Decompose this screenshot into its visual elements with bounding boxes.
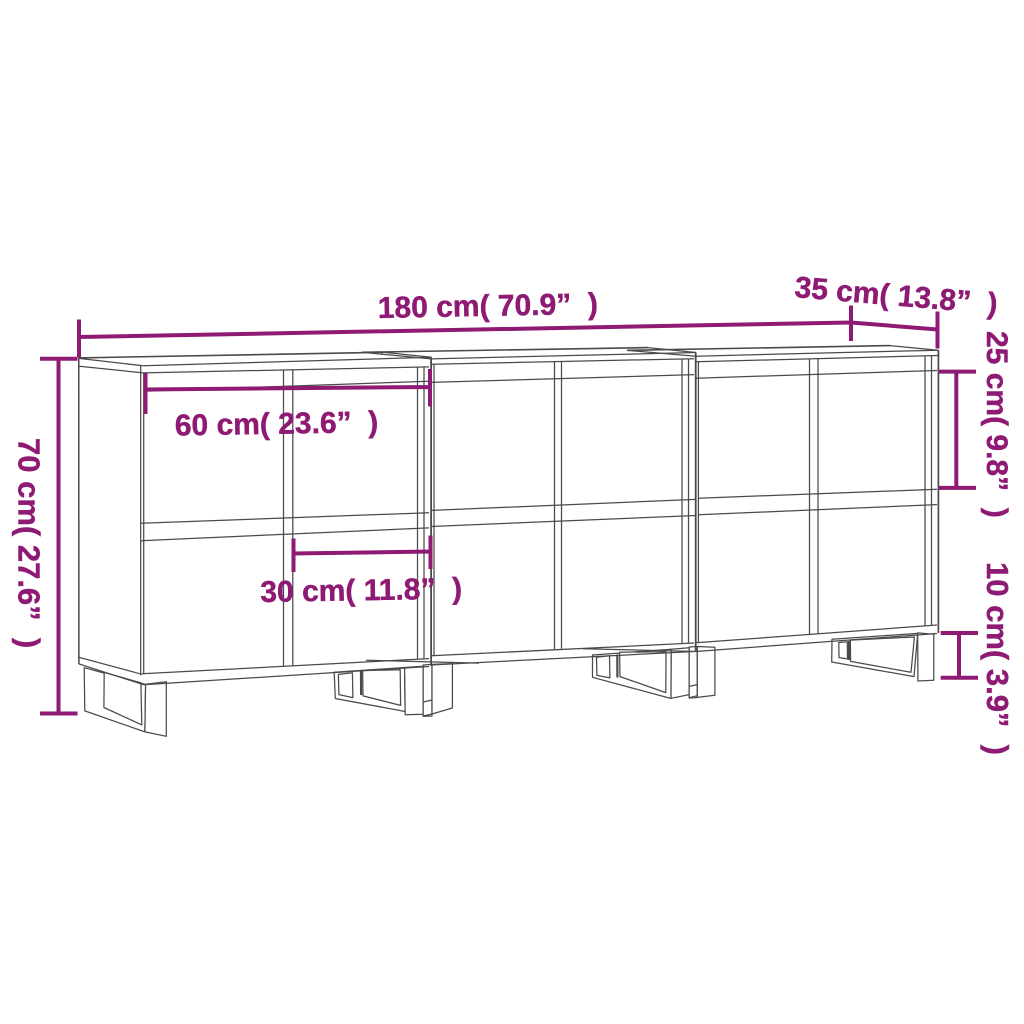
svg-text:30 cm( 11.8” ): 30 cm( 11.8” ) bbox=[260, 572, 462, 609]
svg-text:70 cm( 27.6” ): 70 cm( 27.6” ) bbox=[12, 438, 47, 648]
svg-text:180 cm( 70.9” ): 180 cm( 70.9” ) bbox=[378, 288, 599, 325]
svg-text:10 cm( 3.9” ): 10 cm( 3.9” ) bbox=[980, 562, 1015, 755]
svg-text:60 cm( 23.6” ): 60 cm( 23.6” ) bbox=[175, 406, 379, 443]
svg-text:25 cm( 9.8” ): 25 cm( 9.8” ) bbox=[980, 331, 1013, 518]
